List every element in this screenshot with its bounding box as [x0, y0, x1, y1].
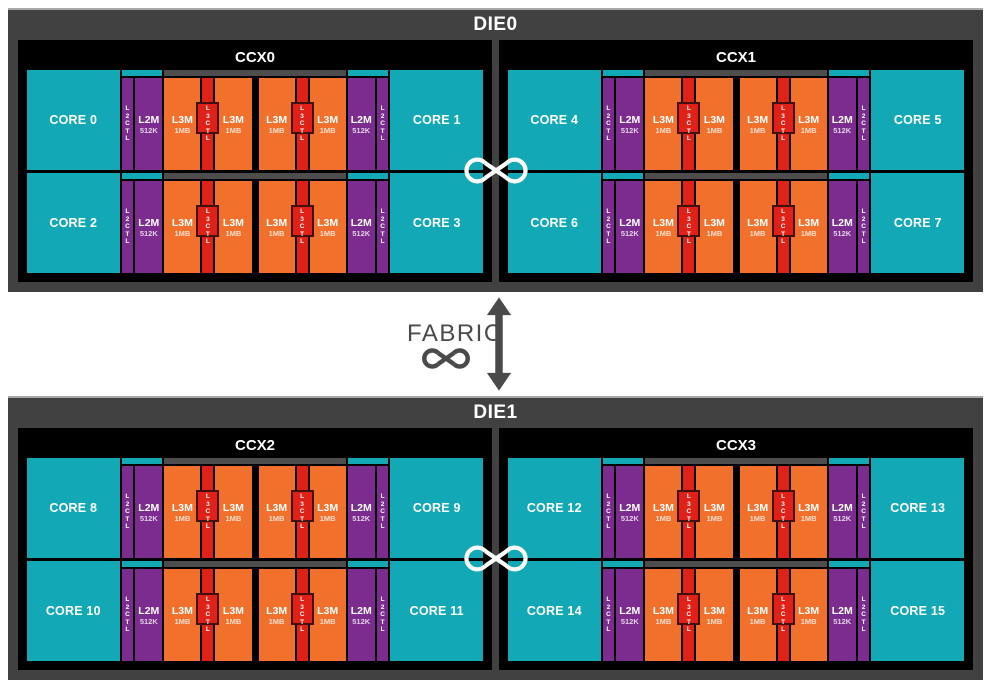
- ccx-panel-ccx2: CCX2CORE 8L2CTLL2M512KL3M1MBL3CTLL3M1MBL…: [18, 428, 492, 670]
- l2m-size-label: 512K: [140, 126, 158, 135]
- core-block: CORE 6: [508, 173, 601, 273]
- l3m-size-label: 1MB: [801, 617, 817, 626]
- l3m-label: L3M: [798, 605, 819, 617]
- l3ctl-label: L3CTL: [300, 596, 305, 634]
- ccx-title: CCX2: [27, 435, 483, 456]
- l3m-size-label: 1MB: [320, 126, 336, 135]
- core-label: CORE 8: [49, 501, 97, 515]
- vertical-letter: C: [687, 611, 692, 619]
- l3m-block: L3M1MB: [215, 181, 251, 273]
- vertical-letter: T: [300, 231, 304, 239]
- vertical-letter: L: [206, 238, 210, 246]
- l2-group: L2CTLL2M512K: [122, 458, 163, 558]
- vertical-letter: 3: [300, 501, 304, 509]
- l3-top-strip: [645, 561, 826, 567]
- l3m-label: L3M: [172, 114, 193, 126]
- l2ctl-block: L2CTL: [858, 78, 870, 170]
- ccx-row: CORE 6L2CTLL2M512KL3M1MBL3CTLL3M1MBL3M1M…: [508, 173, 964, 273]
- vertical-letter: C: [300, 508, 305, 516]
- ccx-row: CORE 14L2CTLL2M512KL3M1MBL3CTLL3M1MBL3M1…: [508, 561, 964, 661]
- vertical-letter: 3: [206, 216, 210, 224]
- l2m-label: L2M: [351, 502, 372, 514]
- l3ctl-block: L3CTL: [297, 181, 308, 273]
- l2m-block: L2M512K: [135, 569, 162, 661]
- l2ctl-block: L2CTL: [377, 181, 389, 273]
- l2m-block: L2M512K: [348, 181, 375, 273]
- vertical-letter: L: [862, 105, 866, 113]
- l3ctl-block: L3CTL: [297, 78, 308, 170]
- l3-group-body: L3M1MBL3CTLL3M1MBL3M1MBL3CTLL3M1MB: [164, 569, 345, 661]
- l3m-block: L3M1MB: [645, 78, 681, 170]
- l3ctl-block: L3CTL: [778, 78, 789, 170]
- vertical-letter: L: [862, 238, 866, 246]
- l3m-block: L3M1MB: [310, 466, 346, 558]
- vertical-letter: L: [606, 105, 610, 113]
- l3m-label: L3M: [704, 605, 725, 617]
- vertical-letter: C: [125, 120, 130, 128]
- core-block: CORE 9: [390, 458, 483, 558]
- vertical-letter: L: [606, 523, 610, 531]
- vertical-letter: L: [606, 238, 610, 246]
- l3m-block: L3M1MB: [740, 466, 776, 558]
- l3-group: L3M1MBL3CTLL3M1MBL3M1MBL3CTLL3M1MB: [164, 458, 345, 558]
- die0-panel: DIE0 CCX0CORE 0L2CTLL2M512KL3M1MBL3CTLL3…: [8, 8, 983, 292]
- vertical-letter: 2: [862, 216, 866, 224]
- vertical-letter: 2: [607, 216, 611, 224]
- l2ctl-label: L2CTL: [380, 596, 385, 634]
- l2m-label: L2M: [619, 605, 640, 617]
- l2-group-body: L2M512KL2CTL: [829, 78, 870, 170]
- l3m-size-label: 1MB: [269, 126, 285, 135]
- core-block: CORE 8: [27, 458, 120, 558]
- core-block: CORE 5: [871, 70, 964, 170]
- l2-group: L2M512KL2CTL: [829, 458, 870, 558]
- vertical-letter: C: [687, 120, 692, 128]
- l2m-size-label: 512K: [833, 617, 851, 626]
- vertical-letter: T: [862, 516, 866, 524]
- l2-group-body: L2CTLL2M512K: [122, 569, 163, 661]
- l2-group: L2CTLL2M512K: [603, 70, 644, 170]
- vertical-letter: T: [300, 619, 304, 627]
- vertical-letter: 3: [206, 113, 210, 121]
- l3-group-body: L3M1MBL3CTLL3M1MBL3M1MBL3CTLL3M1MB: [164, 466, 345, 558]
- l3m-size-label: 1MB: [226, 229, 242, 238]
- vertical-letter: 3: [781, 113, 785, 121]
- l2-top-strip: [603, 561, 644, 567]
- vertical-letter: C: [380, 611, 385, 619]
- l3m-label: L3M: [223, 114, 244, 126]
- l3m-label: L3M: [223, 217, 244, 229]
- l3ctl-label: L3CTL: [206, 493, 211, 531]
- l3-top-strip: [645, 173, 826, 179]
- vertical-letter: L: [862, 493, 866, 501]
- core-block: CORE 14: [508, 561, 601, 661]
- core-label: CORE 2: [49, 216, 97, 230]
- l3ctl-block: L3CTL: [202, 569, 213, 661]
- l2-group: L2CTLL2M512K: [603, 561, 644, 661]
- l3m-block: L3M1MB: [696, 569, 732, 661]
- vertical-letter: 2: [126, 501, 130, 509]
- l3ctl-label: L3CTL: [687, 105, 692, 143]
- l3m-size-label: 1MB: [269, 617, 285, 626]
- l3m-size-label: 1MB: [750, 126, 766, 135]
- l2ctl-label: L2CTL: [606, 493, 611, 531]
- core-block: CORE 4: [508, 70, 601, 170]
- l2m-size-label: 512K: [352, 514, 370, 523]
- l3m-block: L3M1MB: [645, 569, 681, 661]
- vertical-letter: C: [125, 611, 130, 619]
- l3-top-strip: [645, 458, 826, 464]
- core-label: CORE 9: [413, 501, 461, 515]
- vertical-letter: L: [206, 135, 210, 143]
- l2-top-strip: [603, 458, 644, 464]
- l3m-label: L3M: [704, 114, 725, 126]
- vertical-letter: T: [206, 619, 210, 627]
- l2m-block: L2M512K: [829, 466, 856, 558]
- l2ctl-label: L2CTL: [125, 596, 130, 634]
- l3m-size-label: 1MB: [320, 514, 336, 523]
- l3m-block: L3M1MB: [215, 78, 251, 170]
- l2-group-body: L2CTLL2M512K: [122, 78, 163, 170]
- vertical-letter: L: [300, 523, 304, 531]
- vertical-letter: C: [380, 508, 385, 516]
- vertical-letter: C: [687, 223, 692, 231]
- ccx-row: CORE 4L2CTLL2M512KL3M1MBL3CTLL3M1MBL3M1M…: [508, 70, 964, 170]
- l2m-block: L2M512K: [616, 466, 643, 558]
- ccx-rows: CORE 8L2CTLL2M512KL3M1MBL3CTLL3M1MBL3M1M…: [27, 458, 483, 661]
- l2-top-strip: [603, 70, 644, 76]
- l3-group-body: L3M1MBL3CTLL3M1MBL3M1MBL3CTLL3M1MB: [164, 181, 345, 273]
- l2ctl-block: L2CTL: [858, 181, 870, 273]
- l3m-block: L3M1MB: [310, 569, 346, 661]
- vertical-letter: L: [381, 523, 385, 531]
- vertical-letter: 3: [206, 604, 210, 612]
- vertical-letter: T: [687, 128, 691, 136]
- ccx-row: CORE 0L2CTLL2M512KL3M1MBL3CTLL3M1MBL3M1M…: [27, 70, 483, 170]
- l2ctl-block: L2CTL: [858, 466, 870, 558]
- vertical-letter: C: [606, 508, 611, 516]
- l3m-size-label: 1MB: [174, 617, 190, 626]
- vertical-letter: 2: [126, 216, 130, 224]
- l3m-label: L3M: [747, 502, 768, 514]
- core-block: CORE 3: [390, 173, 483, 273]
- vertical-letter: L: [687, 626, 691, 634]
- l2m-size-label: 512K: [833, 126, 851, 135]
- l2-group-body: L2M512KL2CTL: [829, 466, 870, 558]
- l2-top-strip: [122, 173, 163, 179]
- l2-top-strip: [348, 458, 389, 464]
- vertical-letter: C: [300, 223, 305, 231]
- l3m-size-label: 1MB: [707, 617, 723, 626]
- vertical-letter: T: [781, 231, 785, 239]
- l3m-block: L3M1MB: [645, 181, 681, 273]
- l3m-size-label: 1MB: [269, 229, 285, 238]
- vertical-letter: 3: [781, 216, 785, 224]
- l2-group-body: L2CTLL2M512K: [122, 466, 163, 558]
- l2m-block: L2M512K: [616, 569, 643, 661]
- core-label: CORE 7: [894, 216, 942, 230]
- l2-group: L2M512KL2CTL: [348, 561, 389, 661]
- l3m-block: L3M1MB: [259, 181, 295, 273]
- vertical-letter: L: [862, 523, 866, 531]
- vertical-letter: L: [206, 493, 210, 501]
- vertical-letter: T: [606, 128, 610, 136]
- vertical-letter: T: [687, 516, 691, 524]
- l3-top-strip: [164, 173, 345, 179]
- vertical-letter: 3: [300, 216, 304, 224]
- l2-top-strip: [829, 458, 870, 464]
- l2m-block: L2M512K: [616, 181, 643, 273]
- vertical-letter: C: [300, 611, 305, 619]
- core-block: CORE 10: [27, 561, 120, 661]
- l3-center-divider: [735, 466, 738, 558]
- l2m-block: L2M512K: [348, 466, 375, 558]
- l3ctl-label: L3CTL: [687, 596, 692, 634]
- core-label: CORE 15: [890, 604, 945, 618]
- vertical-letter: L: [781, 238, 785, 246]
- vertical-letter: T: [381, 619, 385, 627]
- vertical-letter: T: [381, 128, 385, 136]
- die1-panel: DIE1 CCX2CORE 8L2CTLL2M512KL3M1MBL3CTLL3…: [8, 396, 983, 680]
- l2m-label: L2M: [351, 217, 372, 229]
- l2ctl-block: L2CTL: [377, 569, 389, 661]
- l2m-label: L2M: [619, 217, 640, 229]
- l2m-size-label: 512K: [833, 229, 851, 238]
- l2-group-body: L2M512KL2CTL: [829, 181, 870, 273]
- l2m-block: L2M512K: [135, 466, 162, 558]
- vertical-letter: L: [125, 105, 129, 113]
- l3m-block: L3M1MB: [164, 569, 200, 661]
- vertical-letter: T: [862, 231, 866, 239]
- vertical-letter: L: [300, 238, 304, 246]
- l2m-size-label: 512K: [352, 229, 370, 238]
- l3m-size-label: 1MB: [174, 126, 190, 135]
- l3ctl-label: L3CTL: [206, 105, 211, 143]
- core-label: CORE 6: [530, 216, 578, 230]
- vertical-letter: L: [687, 105, 691, 113]
- l3m-size-label: 1MB: [801, 126, 817, 135]
- l2m-block: L2M512K: [616, 78, 643, 170]
- l2m-label: L2M: [619, 114, 640, 126]
- l2ctl-block: L2CTL: [603, 569, 615, 661]
- vertical-letter: C: [861, 120, 866, 128]
- l3ctl-label: L3CTL: [781, 208, 786, 246]
- vertical-letter: L: [781, 135, 785, 143]
- vertical-letter: L: [862, 626, 866, 634]
- vertical-letter: L: [125, 493, 129, 501]
- core-block: CORE 0: [27, 70, 120, 170]
- core-block: CORE 7: [871, 173, 964, 273]
- l3m-label: L3M: [317, 114, 338, 126]
- l3m-size-label: 1MB: [707, 514, 723, 523]
- vertical-letter: C: [861, 508, 866, 516]
- core-label: CORE 3: [413, 216, 461, 230]
- vertical-letter: T: [381, 231, 385, 239]
- vertical-letter: 2: [862, 501, 866, 509]
- l2-top-strip: [122, 561, 163, 567]
- vertical-letter: C: [206, 611, 211, 619]
- vertical-letter: T: [125, 128, 129, 136]
- l3m-size-label: 1MB: [320, 229, 336, 238]
- l3m-block: L3M1MB: [791, 181, 827, 273]
- l3m-block: L3M1MB: [791, 569, 827, 661]
- l3ctl-block: L3CTL: [297, 466, 308, 558]
- l3-center-divider: [254, 569, 257, 661]
- ccx-rows: CORE 4L2CTLL2M512KL3M1MBL3CTLL3M1MBL3M1M…: [508, 70, 964, 273]
- core-label: CORE 5: [894, 113, 942, 127]
- vertical-letter: C: [206, 508, 211, 516]
- fabric-infinity-icon: [418, 346, 474, 376]
- l3m-size-label: 1MB: [801, 514, 817, 523]
- l3m-label: L3M: [317, 217, 338, 229]
- l3-group: L3M1MBL3CTLL3M1MBL3M1MBL3CTLL3M1MB: [164, 561, 345, 661]
- vertical-letter: L: [300, 208, 304, 216]
- vertical-letter: T: [381, 516, 385, 524]
- l2m-block: L2M512K: [135, 78, 162, 170]
- vertical-letter: C: [206, 120, 211, 128]
- vertical-letter: L: [687, 238, 691, 246]
- l3m-block: L3M1MB: [215, 466, 251, 558]
- vertical-letter: C: [125, 508, 130, 516]
- l2ctl-block: L2CTL: [377, 78, 389, 170]
- vertical-letter: L: [862, 596, 866, 604]
- l3ctl-label: L3CTL: [300, 493, 305, 531]
- vertical-letter: L: [300, 626, 304, 634]
- vertical-letter: 3: [687, 216, 691, 224]
- l2-group: L2CTLL2M512K: [122, 561, 163, 661]
- l2-group: L2M512KL2CTL: [829, 173, 870, 273]
- l2-group-body: L2M512KL2CTL: [829, 569, 870, 661]
- vertical-letter: L: [381, 626, 385, 634]
- l2-group-body: L2CTLL2M512K: [603, 181, 644, 273]
- die0-content: CCX0CORE 0L2CTLL2M512KL3M1MBL3CTLL3M1MBL…: [18, 40, 973, 282]
- vertical-letter: L: [687, 493, 691, 501]
- vertical-letter: T: [206, 231, 210, 239]
- core-label: CORE 4: [530, 113, 578, 127]
- vertical-letter: L: [862, 135, 866, 143]
- l3m-size-label: 1MB: [174, 229, 190, 238]
- l2ctl-block: L2CTL: [122, 466, 134, 558]
- l3ctl-block: L3CTL: [202, 78, 213, 170]
- l3m-label: L3M: [223, 605, 244, 617]
- l2ctl-label: L2CTL: [125, 105, 130, 143]
- l3m-size-label: 1MB: [269, 514, 285, 523]
- l2m-label: L2M: [832, 114, 853, 126]
- l3-top-strip: [164, 70, 345, 76]
- l2m-size-label: 512K: [621, 617, 639, 626]
- l2m-block: L2M512K: [135, 181, 162, 273]
- vertical-letter: L: [606, 493, 610, 501]
- l3m-label: L3M: [798, 502, 819, 514]
- l2m-label: L2M: [619, 502, 640, 514]
- ccx-panel-ccx0: CCX0CORE 0L2CTLL2M512KL3M1MBL3CTLL3M1MBL…: [18, 40, 492, 282]
- vertical-letter: L: [781, 493, 785, 501]
- vertical-letter: L: [381, 208, 385, 216]
- vertical-double-arrow-icon: [485, 296, 513, 397]
- l2m-block: L2M512K: [829, 78, 856, 170]
- l3m-label: L3M: [653, 605, 674, 617]
- l2-group: L2M512KL2CTL: [348, 173, 389, 273]
- l3ctl-label: L3CTL: [300, 208, 305, 246]
- vertical-letter: L: [300, 493, 304, 501]
- ccx-rows: CORE 12L2CTLL2M512KL3M1MBL3CTLL3M1MBL3M1…: [508, 458, 964, 661]
- l3ctl-label: L3CTL: [206, 208, 211, 246]
- l3m-size-label: 1MB: [320, 617, 336, 626]
- l2-group: L2M512KL2CTL: [348, 70, 389, 170]
- ccx-rows: CORE 0L2CTLL2M512KL3M1MBL3CTLL3M1MBL3M1M…: [27, 70, 483, 273]
- l3m-label: L3M: [266, 217, 287, 229]
- l2ctl-block: L2CTL: [122, 78, 134, 170]
- l3m-label: L3M: [798, 217, 819, 229]
- l3ctl-label: L3CTL: [781, 596, 786, 634]
- vertical-letter: 3: [300, 113, 304, 121]
- vertical-letter: 3: [687, 113, 691, 121]
- l3-group: L3M1MBL3CTLL3M1MBL3M1MBL3CTLL3M1MB: [645, 458, 826, 558]
- l3m-label: L3M: [172, 605, 193, 617]
- l2-top-strip: [348, 561, 389, 567]
- l2-top-strip: [348, 70, 389, 76]
- vertical-letter: 2: [607, 501, 611, 509]
- vertical-letter: L: [125, 208, 129, 216]
- l2m-size-label: 512K: [621, 229, 639, 238]
- vertical-letter: T: [300, 128, 304, 136]
- l3ctl-block: L3CTL: [202, 466, 213, 558]
- l3-group: L3M1MBL3CTLL3M1MBL3M1MBL3CTLL3M1MB: [645, 173, 826, 273]
- l3ctl-label: L3CTL: [206, 596, 211, 634]
- vertical-letter: 3: [687, 501, 691, 509]
- l2ctl-label: L2CTL: [380, 105, 385, 143]
- l3-center-divider: [254, 78, 257, 170]
- ccx-panel-ccx1: CCX1CORE 4L2CTLL2M512KL3M1MBL3CTLL3M1MBL…: [499, 40, 973, 282]
- l3m-size-label: 1MB: [226, 514, 242, 523]
- l2ctl-label: L2CTL: [606, 208, 611, 246]
- vertical-letter: L: [606, 596, 610, 604]
- vertical-letter: L: [206, 596, 210, 604]
- l3ctl-label: L3CTL: [300, 105, 305, 143]
- l3m-size-label: 1MB: [801, 229, 817, 238]
- l3ctl-block: L3CTL: [202, 181, 213, 273]
- vertical-letter: L: [606, 135, 610, 143]
- vertical-letter: T: [687, 619, 691, 627]
- vertical-letter: C: [300, 120, 305, 128]
- vertical-letter: T: [606, 619, 610, 627]
- vertical-letter: L: [687, 208, 691, 216]
- vertical-letter: C: [380, 223, 385, 231]
- l3m-label: L3M: [266, 605, 287, 617]
- l3m-label: L3M: [172, 217, 193, 229]
- l3m-label: L3M: [223, 502, 244, 514]
- l2ctl-label: L2CTL: [125, 208, 130, 246]
- vertical-letter: L: [781, 626, 785, 634]
- l2m-size-label: 512K: [140, 617, 158, 626]
- l3m-size-label: 1MB: [655, 617, 671, 626]
- l3ctl-block: L3CTL: [683, 466, 694, 558]
- vertical-letter: T: [125, 231, 129, 239]
- l3m-block: L3M1MB: [259, 569, 295, 661]
- l3m-block: L3M1MB: [740, 181, 776, 273]
- vertical-letter: T: [862, 128, 866, 136]
- vertical-letter: C: [861, 611, 866, 619]
- vertical-letter: C: [125, 223, 130, 231]
- vertical-letter: L: [125, 523, 129, 531]
- vertical-letter: L: [687, 135, 691, 143]
- l3ctl-block: L3CTL: [778, 181, 789, 273]
- l3m-label: L3M: [266, 114, 287, 126]
- vertical-letter: C: [606, 223, 611, 231]
- vertical-letter: T: [606, 231, 610, 239]
- l2ctl-block: L2CTL: [603, 466, 615, 558]
- l3m-block: L3M1MB: [791, 466, 827, 558]
